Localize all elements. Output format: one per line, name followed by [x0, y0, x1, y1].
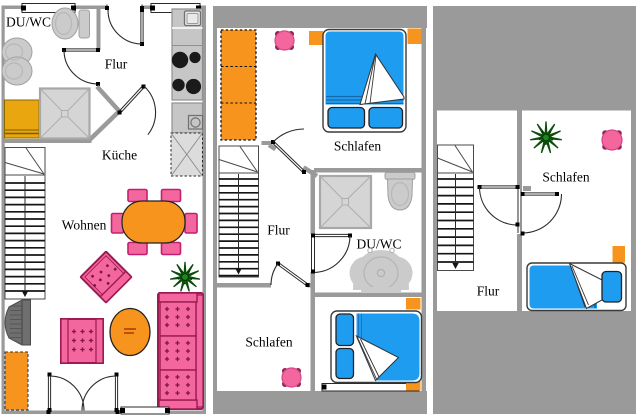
svg-text:Schlafen: Schlafen	[245, 335, 292, 350]
svg-text:Schlafen: Schlafen	[542, 170, 589, 185]
svg-text:Flur: Flur	[267, 223, 290, 238]
svg-text:Küche: Küche	[102, 148, 137, 163]
svg-text:DU/WC: DU/WC	[357, 237, 402, 252]
svg-text:Wohnen: Wohnen	[62, 218, 107, 233]
svg-text:Schlafen: Schlafen	[334, 139, 381, 154]
svg-text:DU/WC: DU/WC	[6, 15, 51, 30]
svg-text:Flur: Flur	[105, 57, 128, 72]
svg-text:Flur: Flur	[477, 284, 500, 299]
